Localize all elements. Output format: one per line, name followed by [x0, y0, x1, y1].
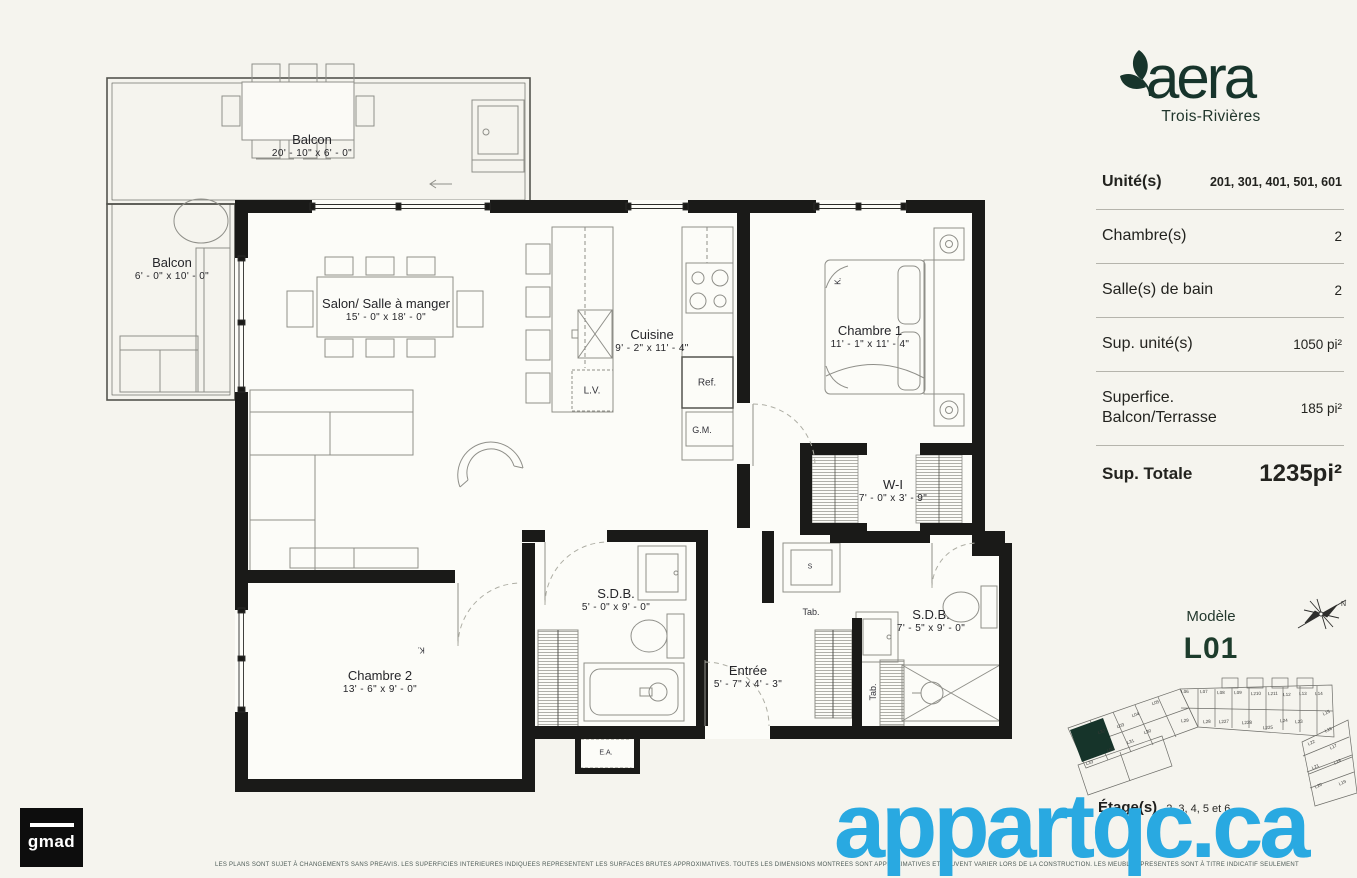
room-label-sdb-1: S.D.B.5' - 0" x 9' - 0" [582, 587, 650, 613]
fixture-label-gm: G.M. [692, 425, 712, 435]
room-label-salon: Salon/ Salle à manger15' - 0" x 18' - 0" [322, 297, 450, 323]
minimap-unit-l20: L20 [1314, 782, 1323, 790]
minimap-unit-l17: L17 [1329, 743, 1338, 751]
minimap-unit-l18: L18 [1333, 758, 1342, 766]
minimap-unit-l09: L09 [1234, 690, 1242, 695]
fixture-label-lv: L.V. [584, 386, 601, 397]
minimap-unit-l29: L29 [1181, 718, 1189, 723]
aera-logo: aera [1120, 44, 1258, 111]
fixture-label-tab: Tab. [802, 607, 819, 617]
floor-plan-drawing: L06L07L08L09L210L211L12L13L14L05L04L03L0… [0, 0, 1357, 878]
gmad-logo-text: gmad [28, 832, 75, 852]
minimap-unit-l210: L210 [1251, 691, 1262, 696]
minimap-unit-l19: L19 [1338, 779, 1347, 787]
gmad-logo: gmad [20, 808, 83, 867]
room-label-sdb-2: S.D.B.7' - 5" x 9' - 0" [897, 608, 965, 634]
minimap-unit-l15: L15 [1322, 709, 1331, 717]
minimap-unit-l24: L24 [1280, 718, 1288, 723]
minimap-unit-l04: L04 [1131, 711, 1140, 718]
fixture-label-tab: Tab. [868, 683, 878, 700]
minimap-unit-l02: L02 [1106, 746, 1115, 753]
minimap-unit-l225: L225 [1263, 725, 1274, 731]
minimap-unit-l08: L08 [1217, 690, 1225, 695]
room-label-entree: Entrée5' - 7" x 4' - 3" [714, 664, 782, 690]
minimap-unit-l30: L30 [1143, 728, 1152, 735]
gmad-logo-bar [30, 823, 74, 827]
fixture-label-k: K. [417, 646, 425, 655]
watermark: appartqc.ca [834, 780, 1306, 872]
room-label-cuisine: Cuisine9' - 2" x 11' - 4" [615, 328, 689, 354]
minimap-unit-l06: L06 [1181, 689, 1189, 694]
minimap-unit-l228: L228 [1242, 720, 1253, 726]
minimap-unit-l22: L22 [1307, 739, 1316, 747]
fixture-label-k: K. [834, 277, 843, 285]
minimap-unit-l28: L28 [1203, 719, 1211, 724]
minimap-unit-l12: L12 [1283, 692, 1291, 697]
minimap-unit-l211: L211 [1268, 691, 1278, 696]
room-label-balcon-left: Balcon6' - 0" x 10' - 0" [135, 256, 209, 282]
minimap-unit-l07: L07 [1200, 689, 1208, 694]
minimap-unit-l31: L31 [1126, 738, 1135, 745]
room-label-walk-in: W-I7' - 0" x 3' - 9" [859, 478, 927, 504]
fixture-label-s: S [808, 564, 813, 571]
minimap-unit-l23: L23 [1295, 719, 1303, 724]
floor-plan-page: L06L07L08L09L210L211L12L13L14L05L04L03L0… [0, 0, 1357, 878]
svg-text:N: N [1341, 601, 1346, 608]
minimap-unit-l21: L21 [1311, 763, 1320, 771]
minimap-unit-l03: L03 [1116, 722, 1125, 729]
minimap-unit-l227: L227 [1219, 719, 1230, 725]
compass-icon: N [1298, 599, 1346, 629]
minimap-unit-l16: L16 [1324, 726, 1333, 734]
room-label-chambre-1: Chambre 111' - 1" x 11' - 4" [831, 324, 910, 350]
room-label-chambre-2: Chambre 213' - 6" x 9' - 0" [343, 669, 417, 695]
fixture-label-ref: Ref. [698, 378, 716, 389]
aera-logo-text: aera [1146, 44, 1258, 111]
fixture-label-ea: E.A. [599, 750, 612, 757]
room-label-balcon-top: Balcon20' - 10" x 6' - 0" [272, 133, 352, 159]
minimap-unit-l14: L14 [1315, 691, 1323, 696]
minimap-unit-l13: L13 [1299, 691, 1307, 696]
